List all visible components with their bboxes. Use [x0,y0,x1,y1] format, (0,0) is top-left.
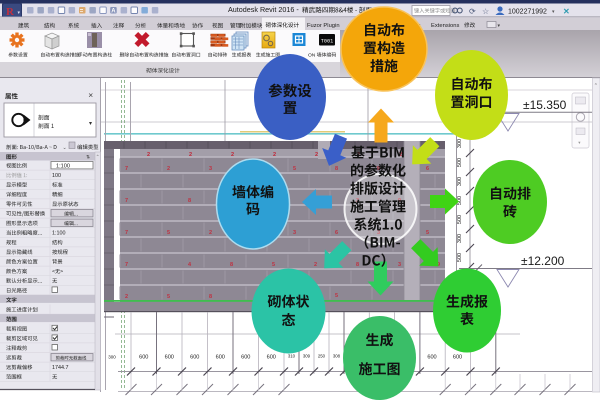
svg-text:⌃: ⌃ [594,83,598,89]
svg-text:7: 7 [125,166,128,172]
svg-text:3: 3 [209,166,212,172]
svg-text:A: A [111,9,116,15]
svg-text:300: 300 [457,234,463,243]
svg-text:5: 5 [335,293,338,299]
svg-text:6: 6 [426,166,429,172]
svg-text:250: 250 [318,354,326,359]
svg-text:600: 600 [190,355,199,361]
svg-text:300: 300 [457,177,463,186]
svg-text:1744.7: 1744.7 [52,365,69,371]
svg-text:600: 600 [216,355,225,361]
svg-text:500: 500 [457,253,463,262]
svg-text:8: 8 [335,166,338,172]
svg-text:R: R [6,6,15,18]
svg-text:8: 8 [356,262,359,268]
svg-text:☆: ☆ [482,7,489,16]
svg-text:✕: ✕ [88,93,93,100]
svg-text:600: 600 [453,355,462,361]
svg-text:5: 5 [167,230,170,236]
svg-text:3: 3 [293,230,296,236]
svg-text:600: 600 [241,355,250,361]
svg-text:±12.200: ±12.200 [521,254,565,268]
svg-text:2: 2 [209,230,212,236]
svg-text:Fuzor Plugin: Fuzor Plugin [307,23,340,29]
svg-text:8: 8 [230,262,233,268]
svg-text:Extensions: Extensions [431,23,459,29]
svg-text:⟳: ⟳ [469,7,476,16]
svg-text:⌄: ⌄ [63,145,67,151]
svg-text:308: 308 [333,354,341,359]
svg-text:600: 600 [165,355,174,361]
svg-text:6: 6 [335,230,338,236]
svg-text:8: 8 [188,198,191,204]
svg-text:=: = [80,8,84,14]
svg-text:2: 2 [167,166,170,172]
svg-text:1:100: 1:100 [52,231,66,237]
svg-text:300: 300 [457,139,463,148]
svg-text:8: 8 [209,294,212,300]
svg-text:±15.350: ±15.350 [523,98,567,112]
svg-text:600: 600 [427,355,436,361]
svg-text:5: 5 [272,262,275,268]
svg-text:309: 309 [303,354,311,359]
svg-text:1002271992: 1002271992 [508,9,547,16]
svg-text:▾: ▾ [89,121,92,127]
svg-text:✕: ✕ [563,7,570,16]
svg-text:310: 310 [288,354,296,359]
svg-text:500: 500 [457,158,463,167]
svg-text:ON: ON [308,53,316,59]
svg-text:2: 2 [314,262,317,268]
svg-text:⇅: ⇅ [86,155,90,161]
svg-text:1:100: 1:100 [56,164,70,170]
svg-text:600: 600 [139,355,148,361]
svg-text:7: 7 [125,262,128,268]
svg-text:100: 100 [52,173,61,179]
svg-text:3: 3 [398,262,401,268]
svg-text:T001: T001 [321,39,333,45]
svg-text:600: 600 [267,355,276,361]
svg-text:5: 5 [167,294,170,300]
svg-text:2: 2 [125,294,128,300]
svg-text:5: 5 [293,166,296,172]
svg-text:⌃: ⌃ [96,154,100,159]
svg-text:7: 7 [125,198,128,204]
svg-text:7: 7 [125,230,128,236]
svg-text:5: 5 [426,230,429,236]
svg-text:500: 500 [457,215,463,224]
svg-text:Autodesk Revit 2016 -: Autodesk Revit 2016 - [228,5,299,14]
svg-text:300: 300 [108,355,116,360]
